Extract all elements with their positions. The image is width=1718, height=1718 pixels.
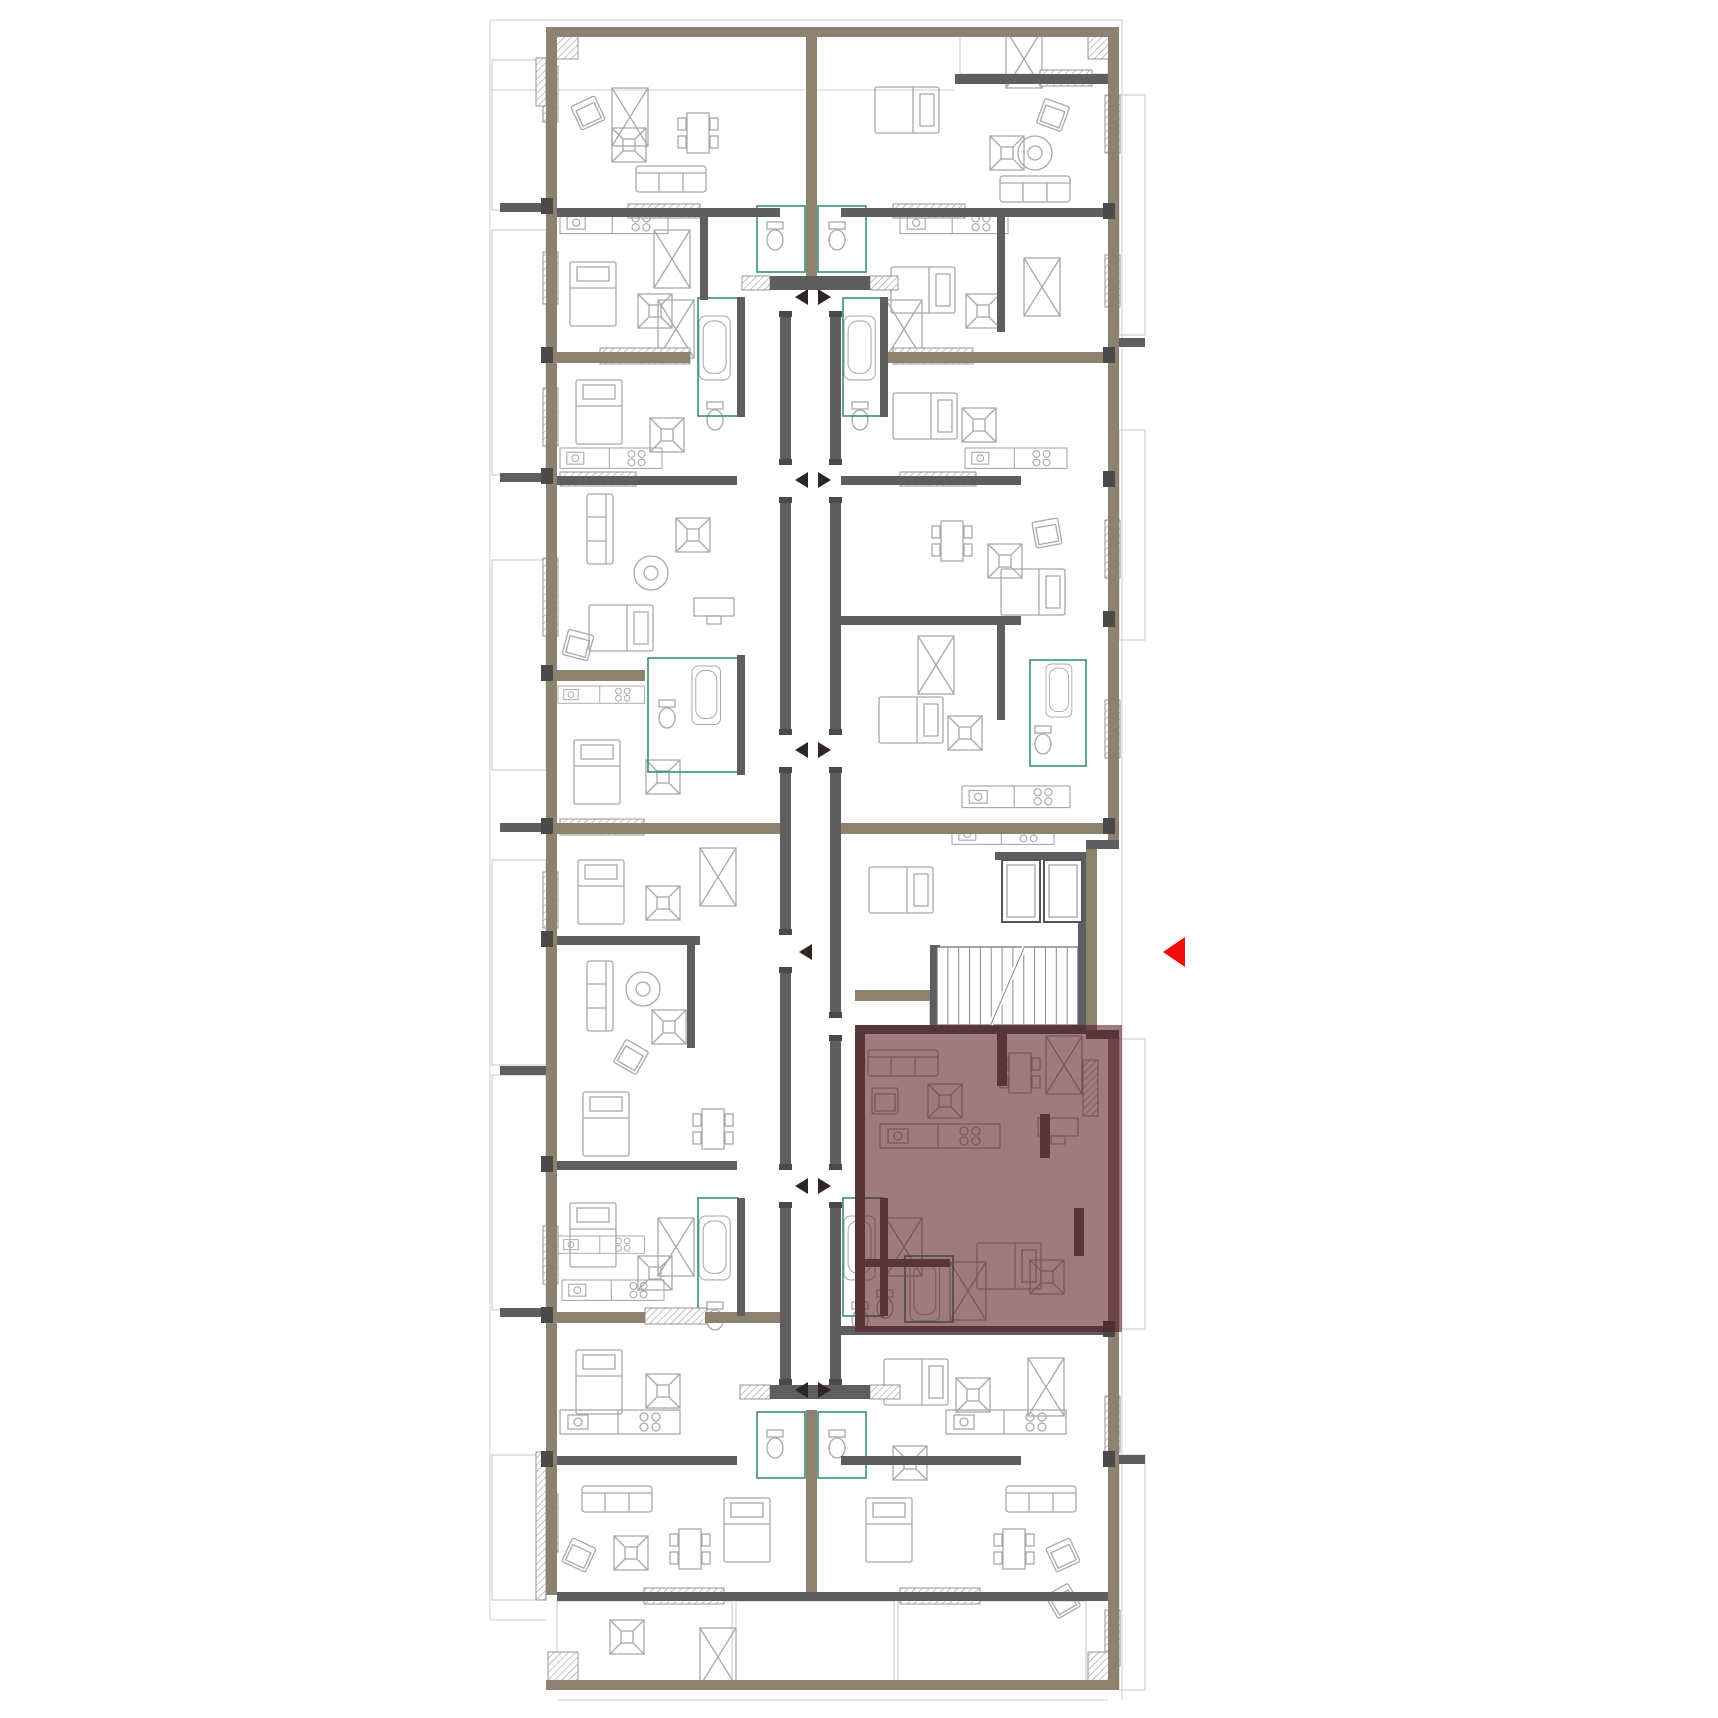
wall-segment-gray	[830, 767, 841, 1018]
wall-pier	[541, 198, 553, 214]
wall-pier	[541, 1156, 553, 1172]
bathroom-outline	[648, 658, 738, 772]
wall-end-cap	[779, 929, 792, 935]
wall-segment-gray	[995, 852, 1086, 860]
wall-end-cap	[779, 1202, 792, 1208]
window-hatch-fill	[536, 58, 546, 106]
wall-segment-olive	[1086, 849, 1097, 1039]
wall-segment-gray	[557, 208, 780, 217]
wall-segment-gray	[1086, 840, 1119, 849]
furniture-table	[638, 294, 672, 328]
wall-segment-gray	[830, 1035, 841, 1170]
wall-segment-gray	[830, 497, 841, 735]
wall-segment-gray	[737, 1198, 745, 1316]
door-marker-left-icon	[795, 742, 808, 758]
furniture-bed	[1001, 569, 1065, 615]
door-marker-left-icon	[795, 289, 808, 305]
furniture-bed	[576, 1350, 622, 1414]
furniture-kitchen	[560, 448, 662, 468]
wall-end-cap	[829, 311, 842, 317]
furniture-table	[948, 716, 982, 750]
balcony-outline	[1119, 95, 1145, 335]
wall-pier	[1103, 203, 1115, 219]
furniture-ward	[658, 1218, 694, 1276]
wall-pier	[1103, 471, 1115, 487]
elevator	[1002, 860, 1040, 922]
wall-segment-olive	[855, 990, 933, 1001]
furniture-sofa	[1006, 1486, 1076, 1512]
furniture-tub	[692, 666, 721, 725]
orientation-arrow-icon	[1163, 937, 1185, 967]
furniture-kitchen	[962, 786, 1070, 808]
wall-segment-gray	[687, 940, 695, 1048]
furniture-table	[966, 294, 1000, 328]
furniture-ward	[1028, 1358, 1064, 1416]
floor-plan-svg	[0, 0, 1718, 1718]
furniture-toilet	[767, 222, 783, 250]
wall-segment-gray	[841, 208, 1108, 217]
furniture-armchair	[1032, 518, 1062, 548]
furniture-toilet	[659, 700, 675, 728]
wall-segment-gray	[780, 767, 791, 935]
wall-segment-gray	[880, 297, 888, 417]
wall-pier	[541, 1451, 553, 1467]
furniture-tub	[699, 1216, 730, 1280]
furniture-ward	[1024, 258, 1060, 316]
wall-end-cap	[829, 1164, 842, 1170]
wall-segment-olive	[888, 352, 1105, 363]
furniture-tub	[699, 316, 730, 380]
furniture-sofa	[636, 166, 706, 192]
wall-segment-gray	[780, 1202, 791, 1385]
furniture-table	[652, 1010, 686, 1044]
wall-segment-olive	[557, 1312, 645, 1323]
bathroom-outline	[757, 1412, 805, 1478]
furniture-kitchen	[558, 1236, 644, 1253]
wall-segment-gray	[557, 1161, 737, 1170]
furniture-toilet	[829, 222, 845, 250]
wall-end-cap	[779, 459, 792, 465]
wall-segment-gray	[841, 476, 1021, 485]
wall-end-cap	[829, 1035, 842, 1041]
door-marker-right-icon	[818, 472, 831, 488]
furniture-toilet	[1035, 726, 1051, 754]
window-hatch-fill	[742, 276, 770, 290]
door-marker-right-icon	[818, 1178, 831, 1194]
selected-unit-overlay[interactable]	[855, 1025, 1122, 1332]
furniture-table	[988, 544, 1022, 578]
window-hatch-fill	[536, 1452, 546, 1600]
furniture-table	[650, 418, 684, 452]
balcony-outline	[492, 860, 546, 1065]
door-marker-right-icon	[818, 289, 831, 305]
furniture-ward	[654, 230, 690, 288]
wall-end-cap	[829, 1202, 842, 1208]
wall-segment-gray	[841, 616, 1021, 625]
wall-segment-olive	[546, 1680, 1119, 1690]
wall-segment-gray	[737, 297, 745, 417]
furniture-dining	[670, 1529, 710, 1569]
wall-segment-olive	[557, 670, 645, 681]
door-marker-layer	[795, 289, 831, 1398]
window-hatch-fill	[870, 1385, 900, 1399]
wall-end-cap	[829, 767, 842, 773]
wall-pier	[1103, 611, 1115, 627]
furniture-toilet	[767, 1430, 783, 1458]
furniture-bed	[891, 267, 955, 313]
wall-segment-gray	[780, 967, 791, 1170]
pointer-layer	[1163, 937, 1185, 967]
wall-segment-gray	[500, 823, 546, 832]
wall-end-cap	[779, 311, 792, 317]
wall-pier	[1103, 347, 1115, 363]
wall-end-cap	[779, 1379, 792, 1385]
wall-segment-gray	[780, 497, 791, 735]
furniture-table	[646, 886, 680, 920]
wall-segment-olive	[546, 27, 1119, 37]
wall-segment-gray	[1119, 338, 1145, 347]
wall-segment-gray	[500, 1308, 546, 1317]
wall-segment-gray	[830, 1202, 841, 1385]
furniture-ward	[612, 88, 648, 146]
wall-segment-olive	[806, 27, 817, 276]
door-marker-left-icon	[795, 472, 808, 488]
wall-pier	[541, 665, 553, 681]
door-marker-right-icon	[818, 742, 831, 758]
wall-segment-gray	[557, 476, 737, 485]
furniture-armchair	[613, 1039, 649, 1075]
wall-end-cap	[829, 1379, 842, 1385]
wall-pier	[541, 931, 553, 947]
furniture-bed	[875, 87, 939, 133]
door-marker-left-icon	[799, 944, 812, 960]
furniture-dining	[932, 521, 972, 561]
furniture-round	[626, 972, 660, 1006]
balcony-outline	[1119, 1455, 1145, 1690]
wall-segment-gray	[780, 311, 791, 465]
furniture-table	[990, 136, 1024, 170]
wall-end-cap	[829, 459, 842, 465]
wall-segment-gray	[737, 655, 745, 775]
furniture-bed	[576, 380, 622, 444]
furniture-bed	[869, 867, 933, 913]
furniture-table	[646, 760, 680, 794]
furniture-table	[610, 1620, 644, 1654]
furniture-bed	[724, 1498, 770, 1562]
furniture-desk	[694, 598, 734, 624]
wall-end-cap	[779, 1164, 792, 1170]
furniture-ward	[918, 636, 954, 694]
elevator	[1044, 860, 1082, 922]
balcony-outline	[492, 1075, 546, 1310]
wall-segment-gray	[557, 1592, 1108, 1601]
furniture-bed	[574, 740, 620, 804]
furniture-toilet	[829, 1430, 845, 1458]
wall-segment-gray	[557, 936, 700, 945]
wall-segment-gray	[1119, 1455, 1145, 1464]
furniture-bed	[866, 1498, 912, 1562]
furniture-table	[956, 1378, 990, 1412]
wall-segment-gray	[700, 212, 708, 300]
furniture-armchair	[571, 96, 606, 131]
door-marker-left-icon	[795, 1178, 808, 1194]
furniture-round	[1018, 136, 1052, 170]
furniture-kitchen	[558, 686, 644, 703]
furniture-armchair	[1046, 1538, 1081, 1573]
floor-plan-canvas	[0, 0, 1718, 1718]
wall-end-cap	[779, 497, 792, 503]
furniture-armchair	[562, 1538, 597, 1573]
window-hatch-fill	[870, 276, 898, 290]
wall-segment-gray	[500, 1066, 546, 1075]
furniture-kitchen	[965, 448, 1067, 468]
furniture-tub	[844, 316, 875, 380]
furniture-table	[676, 518, 710, 552]
wall-segment-olive	[557, 823, 783, 834]
furniture-sofa	[582, 1486, 652, 1512]
wall-segment-gray	[841, 1456, 1021, 1465]
wall-segment-gray	[997, 212, 1005, 332]
furniture-bed	[893, 393, 957, 439]
wall-end-cap	[779, 967, 792, 973]
wall-segment-gray	[500, 203, 546, 212]
furniture-sofa	[587, 494, 613, 564]
furniture-tub	[1046, 664, 1072, 717]
furniture-round	[634, 556, 668, 590]
wall-segment-olive	[557, 352, 690, 363]
stair-elevator-layer	[937, 860, 1082, 1025]
balcony-outline	[960, 32, 1108, 74]
wall-segment-gray	[557, 1456, 737, 1465]
bathroom-outline	[1030, 660, 1086, 766]
furniture-table	[646, 1374, 680, 1408]
wall-pier	[1103, 818, 1115, 834]
window-hatch-fill	[548, 1652, 578, 1682]
wall-pier	[541, 468, 553, 484]
wall-pier	[1103, 1451, 1115, 1467]
wall-segment-gray	[500, 473, 546, 482]
furniture-kitchen	[946, 1410, 1066, 1434]
highlight-layer	[855, 1025, 1122, 1332]
wall-segment-gray	[830, 311, 841, 465]
balcony-outline	[492, 560, 546, 770]
wall-end-cap	[829, 1012, 842, 1018]
wall-segment-gray	[997, 616, 1005, 720]
furniture-bed	[570, 1203, 616, 1267]
wall-segment-olive	[1108, 27, 1119, 840]
balcony-outline	[1119, 1039, 1145, 1329]
balcony-outline	[492, 230, 546, 475]
furniture-dining	[693, 1109, 733, 1149]
furniture-ward	[700, 848, 736, 906]
wall-segment-olive	[841, 823, 1108, 834]
wall-pier	[541, 818, 553, 834]
wall-end-cap	[779, 729, 792, 735]
furniture-armchair	[1036, 98, 1069, 131]
furniture-ward	[700, 1628, 736, 1686]
wall-end-cap	[779, 767, 792, 773]
furniture-bed	[589, 605, 653, 651]
window-hatch-fill	[740, 1385, 770, 1399]
furniture-sofa	[587, 961, 613, 1031]
furniture-dining	[678, 113, 718, 153]
furniture-sofa	[1000, 176, 1070, 202]
balcony-outline	[1119, 430, 1145, 640]
wall-pier	[541, 1307, 553, 1323]
wall-segment-olive	[546, 27, 557, 1595]
bathroom-outline	[818, 1412, 866, 1478]
furniture-dining	[994, 1529, 1034, 1569]
furniture-bed	[578, 860, 624, 924]
wall-end-cap	[829, 729, 842, 735]
furniture-table	[962, 408, 996, 442]
wall-segment-gray	[770, 276, 870, 290]
furniture-bed	[583, 1092, 629, 1156]
furniture-table	[614, 1536, 648, 1570]
balcony-outline	[736, 1601, 894, 1681]
wall-segment-olive	[806, 1410, 817, 1592]
wall-pier	[541, 347, 553, 363]
wall-end-cap	[829, 497, 842, 503]
wall-segment-gray	[955, 74, 1108, 84]
furniture-bed	[570, 262, 616, 326]
furniture-table	[612, 128, 646, 162]
window-hatch-fill	[645, 1308, 707, 1324]
furniture-bed	[879, 697, 943, 743]
